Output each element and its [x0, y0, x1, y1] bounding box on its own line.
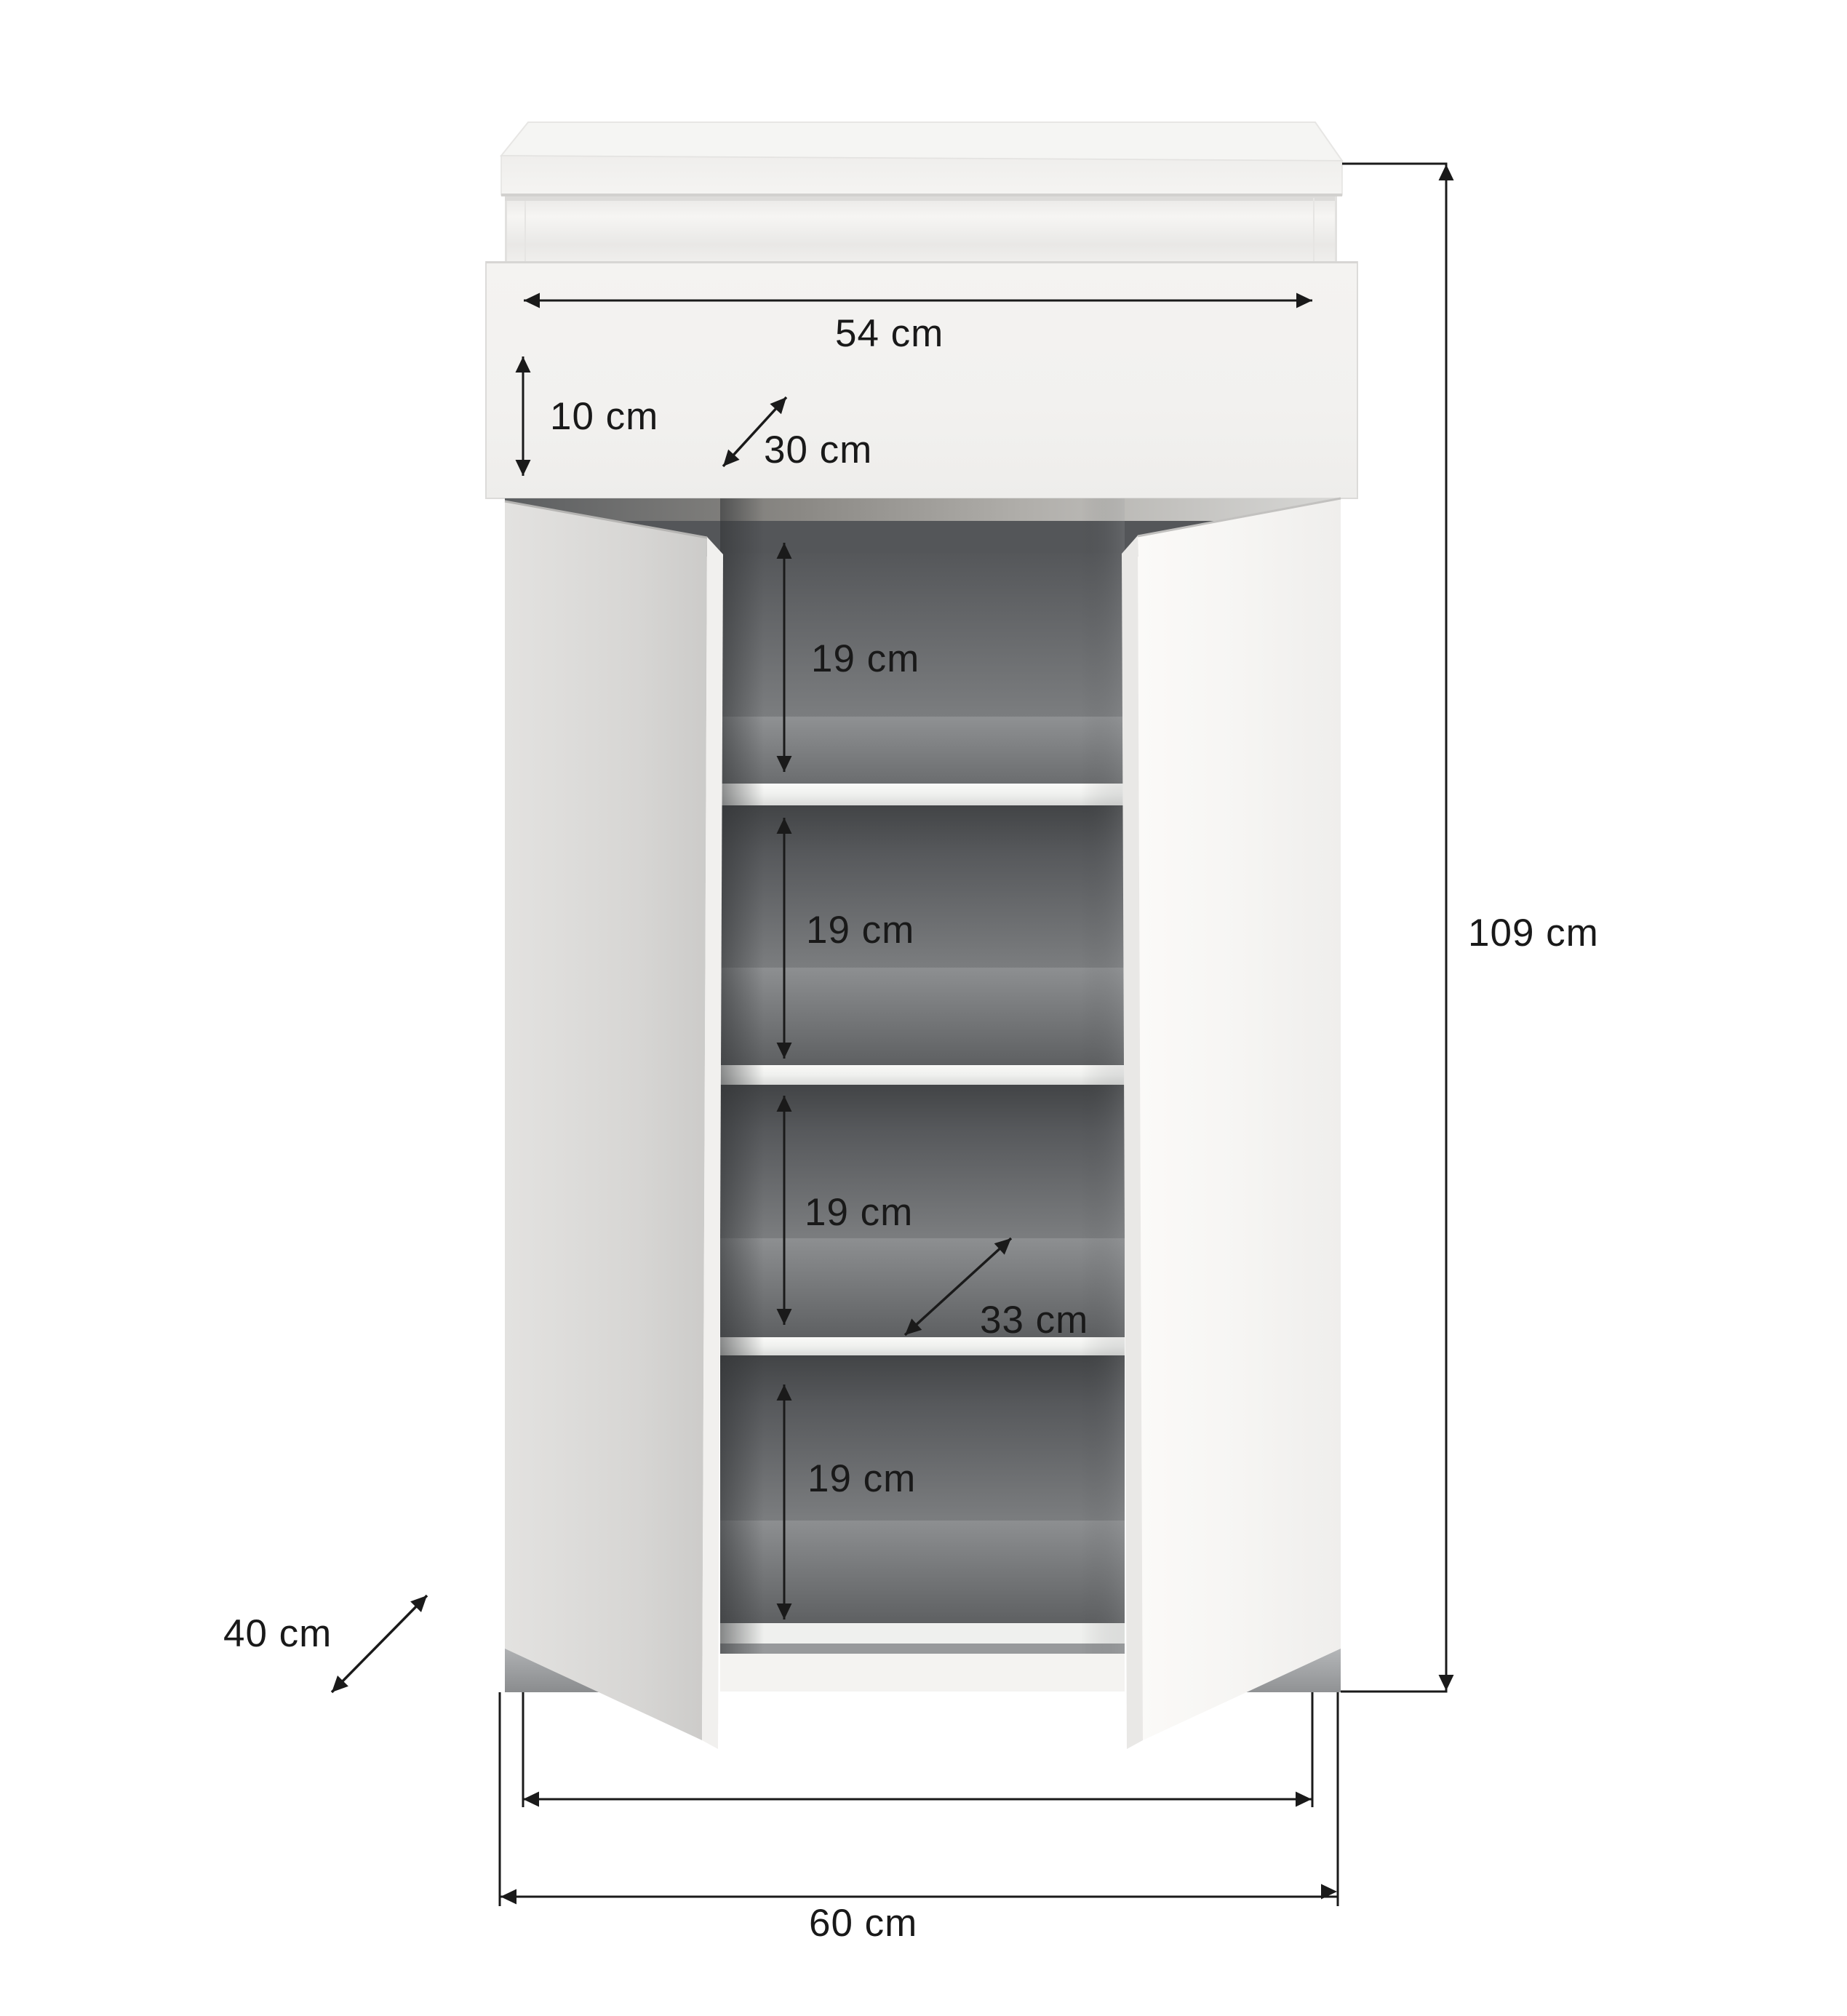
- svg-text:19 cm: 19 cm: [806, 909, 914, 952]
- svg-text:40 cm: 40 cm: [223, 1612, 332, 1655]
- svg-text:109 cm: 109 cm: [1468, 912, 1599, 955]
- svg-text:33 cm: 33 cm: [980, 1299, 1088, 1342]
- svg-text:19 cm: 19 cm: [811, 637, 919, 680]
- svg-text:30 cm: 30 cm: [764, 429, 872, 471]
- svg-text:19 cm: 19 cm: [807, 1457, 916, 1500]
- svg-text:54 cm: 54 cm: [835, 312, 944, 355]
- svg-text:10 cm: 10 cm: [550, 395, 658, 438]
- svg-text:19 cm: 19 cm: [805, 1191, 913, 1234]
- svg-text:60 cm: 60 cm: [809, 1902, 917, 1945]
